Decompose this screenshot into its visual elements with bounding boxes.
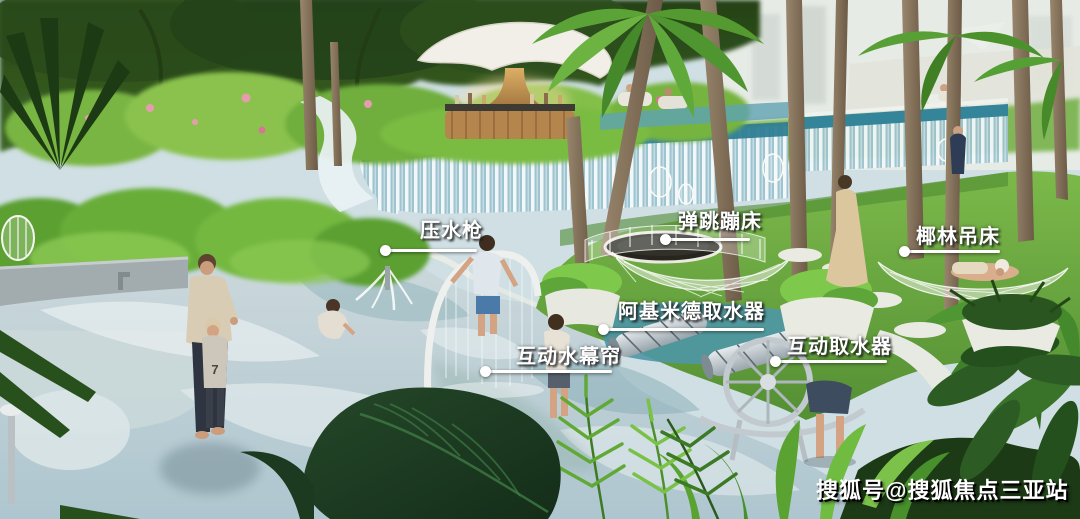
watermark-text: 搜狐号@搜狐焦点三亚站 [816, 480, 1068, 502]
scene-illustration: 7 [0, 0, 1080, 519]
rendered-waterpark-image: 7 [0, 0, 1080, 519]
toddler-shirt-number: 7 [211, 362, 218, 377]
